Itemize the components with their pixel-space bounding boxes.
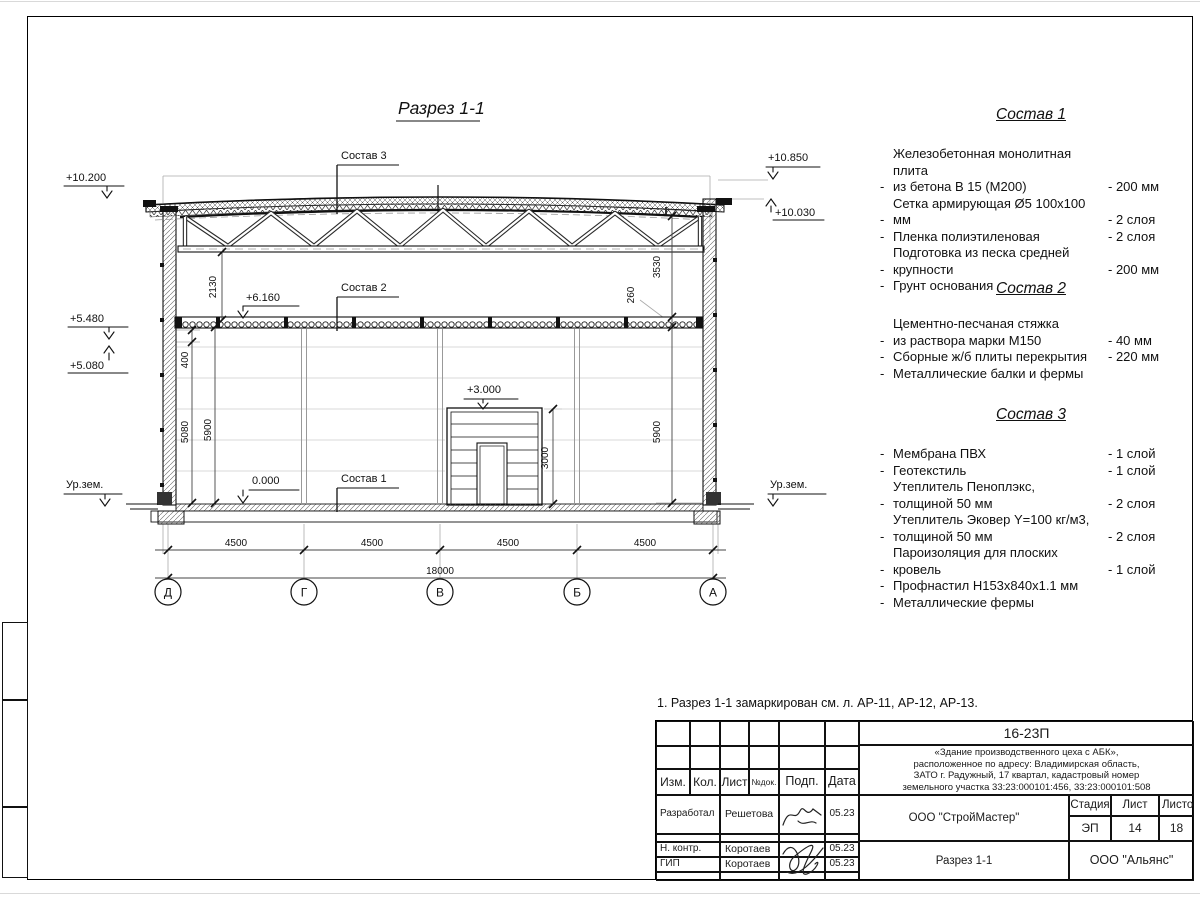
dim-5080: 5080 — [180, 420, 191, 443]
elev-left-roof: +10.200 — [66, 172, 106, 184]
eaves-block-left — [143, 200, 156, 207]
bullet: - — [880, 349, 893, 366]
dim-5900-left: 5900 — [203, 418, 214, 441]
bullet: - — [880, 366, 893, 383]
ground-label-left: Ур.зем. — [66, 479, 103, 491]
stage-value: ЭП — [1069, 816, 1111, 841]
col-kol: Кол. — [690, 769, 720, 795]
row-date: 05.23 — [825, 795, 859, 834]
title-block: Изм. Кол. Лист №док. Подп. Дата Разработ… — [655, 720, 1193, 880]
dim-260: 260 — [626, 286, 637, 303]
dim-span-2: 4500 — [361, 538, 384, 549]
bullet: - — [880, 463, 893, 480]
composition-item: -Металлические балки и фермы — [880, 366, 1182, 383]
item-value: - 200 мм — [1106, 262, 1180, 279]
signature-mark — [777, 834, 829, 880]
row-role: Разработал — [656, 795, 720, 834]
composition-item: -Подготовка из песка средней крупности- … — [880, 245, 1182, 278]
bullet: - — [880, 595, 893, 612]
composition-title: Состав 1 — [880, 106, 1182, 124]
wall-left — [163, 211, 176, 505]
row-role: ГИП — [656, 857, 720, 872]
item-value: - 1 слой — [1106, 562, 1180, 579]
dim-5900-right: 5900 — [652, 420, 663, 443]
col-izm: Изм. — [656, 769, 690, 795]
item-text: Утеплитель Эковер Y=100 кг/м3, толщиной … — [893, 512, 1106, 545]
item-value: - 1 слой — [1106, 446, 1180, 463]
bullet: - — [880, 212, 893, 229]
bullet: - — [880, 179, 893, 196]
wicket-door — [477, 443, 507, 504]
composition-item: -Металлические фермы — [880, 595, 1182, 612]
bullet: - — [880, 529, 893, 546]
composition-title: Состав 2 — [880, 280, 1182, 298]
company: ООО "Альянс" — [1069, 841, 1194, 881]
elev-left-upper: +5.480 — [70, 313, 104, 325]
cornice-block-right — [716, 198, 732, 205]
dim-span-1: 4500 — [225, 538, 248, 549]
row-name: Коротаев — [720, 857, 779, 872]
composition-item: -Пленка полиэтиленовая- 2 слоя — [880, 229, 1182, 246]
foundation — [126, 492, 754, 524]
object-line: «Здание производственного цеха с АБК», — [935, 747, 1119, 759]
elev-slab: +6.160 — [246, 292, 280, 304]
dim-span-4: 4500 — [634, 538, 657, 549]
composition-item: -Профнастил Н153х840х1.1 мм — [880, 578, 1182, 595]
wall-right — [703, 199, 716, 505]
axis-label-v: В — [436, 586, 444, 600]
plinth-right — [706, 492, 721, 505]
item-text: Металлические фермы — [893, 595, 1106, 612]
item-value: - 200 мм — [1106, 179, 1180, 196]
bullet: - — [880, 496, 893, 513]
drawing-title-cell: Разрез 1-1 — [859, 841, 1069, 881]
row-name: Коротаев — [720, 842, 779, 857]
item-value: - 2 слоя — [1106, 229, 1180, 246]
doc-number: 16-23П — [859, 721, 1194, 745]
bullet: - — [880, 262, 893, 279]
dim-3000: 3000 — [540, 446, 551, 469]
drawing-sheet: { "sheet": { "title": "Разрез 1-1", "not… — [0, 0, 1200, 900]
leader-sostav3: Состав 3 — [341, 150, 387, 162]
bullet: - — [880, 229, 893, 246]
object-line: расположенное по адресу: Владимирская об… — [913, 759, 1139, 771]
leader-sostav1: Состав 1 — [341, 473, 387, 485]
composition-item: -Утеплитель Эковер Y=100 кг/м3, толщиной… — [880, 512, 1182, 545]
dim-ticks — [164, 212, 717, 582]
composition-item: -Утеплитель Пеноплэкс, толщиной 50 мм- 2… — [880, 479, 1182, 512]
bullet: - — [880, 578, 893, 595]
object-line: ЗАТО г. Радужный, 17 квартал, кадастровы… — [914, 770, 1140, 782]
composition-title: Состав 3 — [880, 406, 1182, 424]
axis-label-b: Б — [573, 586, 581, 600]
col-doc: №док. — [749, 769, 779, 795]
item-text: Железобетонная монолитная плита из бетон… — [893, 146, 1106, 196]
col-date: Дата — [825, 769, 859, 795]
row-date: 05.23 — [825, 842, 859, 857]
dimensions: 4500 4500 4500 4500 18000 400 5080 5900 … — [155, 212, 726, 582]
dim-span-3: 4500 — [497, 538, 520, 549]
leader-sostav2: Состав 2 — [341, 282, 387, 294]
axis-label-g: Г — [301, 586, 308, 600]
item-text: Пленка полиэтиленовая — [893, 229, 1106, 246]
item-value: - 40 мм — [1106, 333, 1180, 350]
item-text: Цементно-песчаная стяжка из раствора мар… — [893, 316, 1106, 349]
composition-block-2: Состав 2 -Цементно-песчаная стяжка из ра… — [880, 280, 1182, 382]
signature-mark — [780, 799, 824, 833]
view-title: Разрез 1-1 — [398, 98, 485, 118]
composition-item: -Железобетонная монолитная плита из бето… — [880, 146, 1182, 196]
composition-item: -Мембрана ПВХ- 1 слой — [880, 446, 1182, 463]
item-value: - 2 слоя — [1106, 529, 1180, 546]
item-value: - 220 мм — [1106, 349, 1180, 366]
composition-item: -Цементно-песчаная стяжка из раствора ма… — [880, 316, 1182, 349]
elev-floor: 0.000 — [252, 475, 280, 487]
gate — [445, 406, 544, 506]
composition-item: -Сборные ж/б плиты перекрытия- 220 мм — [880, 349, 1182, 366]
composition-block-1: Состав 1 -Железобетонная монолитная плит… — [880, 106, 1182, 295]
bullet: - — [880, 562, 893, 579]
item-text: Утеплитель Пеноплэкс, толщиной 50 мм — [893, 479, 1106, 512]
item-text: Металлические балки и фермы — [893, 366, 1106, 383]
item-text: Мембрана ПВХ — [893, 446, 1106, 463]
axis-grid: Д Г В Б А — [155, 579, 726, 605]
sheets-total: 18 — [1159, 816, 1194, 841]
sheet-number: 14 — [1111, 816, 1159, 841]
object-description: «Здание производственного цеха с АБК», р… — [859, 745, 1194, 795]
elev-left-lower: +5.080 — [70, 360, 104, 372]
col-podp: Подп. — [779, 769, 825, 795]
item-text: Профнастил Н153х840х1.1 мм — [893, 578, 1106, 595]
floor-slab — [175, 317, 703, 328]
composition-block-3: Состав 3 -Мембрана ПВХ- 1 слой -Геотекст… — [880, 406, 1182, 611]
dim-total: 18000 — [426, 566, 454, 577]
row-name: Решетова — [720, 795, 779, 834]
dim-3530: 3530 — [652, 255, 663, 278]
contractor: ООО "СтройМастер" — [859, 795, 1069, 841]
item-value: - 2 слоя — [1106, 496, 1180, 513]
sheets-label: Листов — [1159, 795, 1194, 816]
elev-gate: +3.000 — [467, 384, 501, 396]
item-text: Сборные ж/б плиты перекрытия — [893, 349, 1106, 366]
composition-item: -Геотекстиль- 1 слой — [880, 463, 1182, 480]
walls — [160, 199, 717, 505]
ground-label-right: Ур.зем. — [770, 479, 807, 491]
item-text: Пароизоляция для плоских кровель — [893, 545, 1106, 578]
bullet: - — [880, 446, 893, 463]
axis-label-a: А — [709, 586, 717, 600]
item-value: - 1 слой — [1106, 463, 1180, 480]
item-text: Геотекстиль — [893, 463, 1106, 480]
composition-item: -Сетка армирующая Ø5 100x100 мм- 2 слоя — [880, 196, 1182, 229]
row-date: 05.23 — [825, 857, 859, 872]
axis-label-d: Д — [164, 586, 172, 600]
item-text: Подготовка из песка средней крупности — [893, 245, 1106, 278]
elev-right-roof: +10.030 — [775, 207, 815, 219]
object-line: земельного участка 33:23:000101:456, 33:… — [902, 782, 1150, 794]
item-value: - 2 слоя — [1106, 212, 1180, 229]
elev-right-parapet: +10.850 — [768, 152, 808, 164]
dim-400: 400 — [180, 351, 191, 368]
bullet: - — [880, 333, 893, 350]
sheet-label: Лист — [1111, 795, 1159, 816]
dim-2130: 2130 — [208, 275, 219, 298]
plinth-left — [157, 492, 172, 505]
row-role: Н. контр. — [656, 842, 720, 857]
item-text: Сетка армирующая Ø5 100x100 мм — [893, 196, 1106, 229]
col-list: Лист — [720, 769, 749, 795]
roof-truss — [178, 210, 704, 252]
stage-label: Стадия — [1069, 795, 1111, 816]
composition-item: -Пароизоляция для плоских кровель- 1 сло… — [880, 545, 1182, 578]
sheet-note: 1. Разрез 1-1 замаркирован см. л. АР-11,… — [657, 696, 978, 710]
